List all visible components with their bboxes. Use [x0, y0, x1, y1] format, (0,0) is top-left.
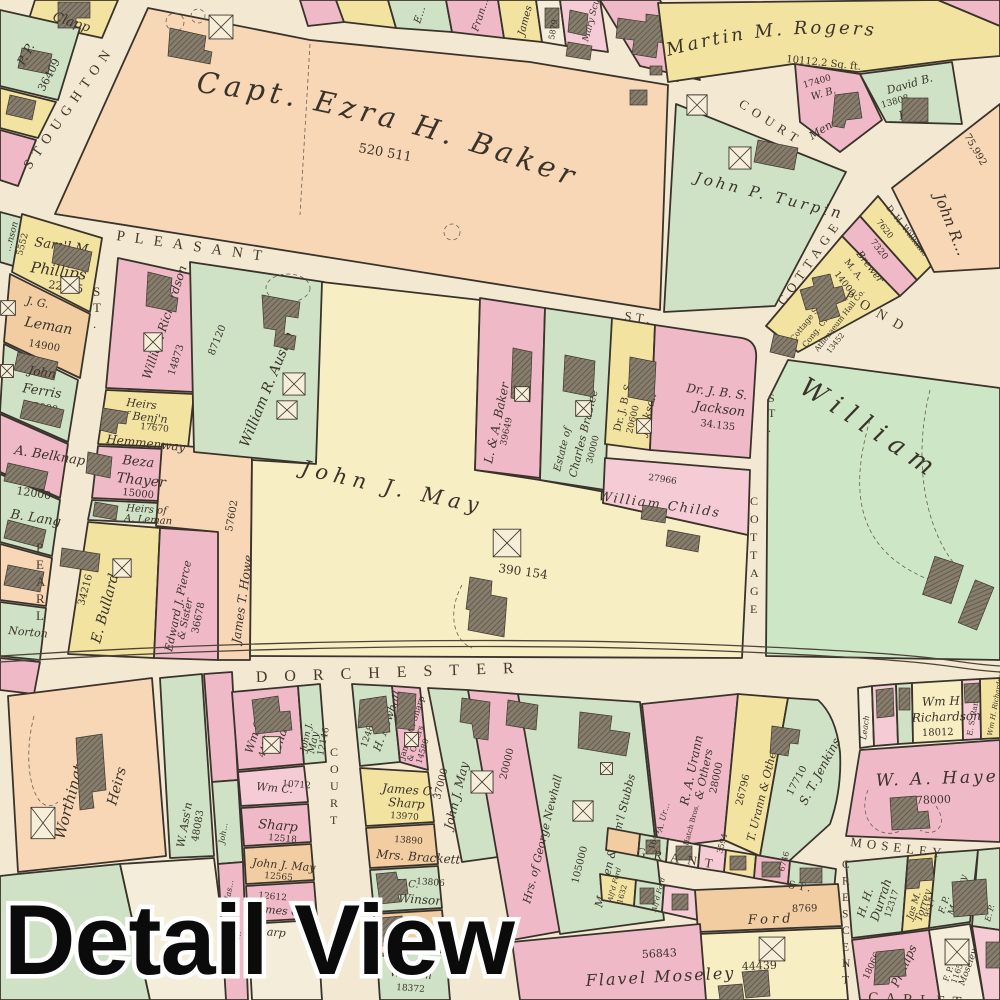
building	[730, 856, 746, 870]
building-x	[61, 277, 79, 294]
label-jcs2b: Sharp	[388, 795, 426, 812]
building	[630, 90, 647, 105]
building-x	[576, 401, 592, 417]
building-x	[515, 387, 530, 402]
parcel-strip	[212, 780, 243, 864]
building-x	[1, 301, 16, 316]
parcel-tiny	[606, 828, 640, 856]
label-brackett-number: 13890	[394, 835, 424, 847]
label-flavel-number: 56843	[641, 946, 677, 961]
building	[876, 688, 894, 718]
label-ford-number: 8769	[792, 903, 818, 915]
building-x	[405, 733, 419, 747]
block-richardson: Leach Wm H. Richardson 18012 E. S. Rand …	[846, 669, 1000, 842]
detail-view-caption: Detail View	[4, 884, 516, 995]
building	[628, 357, 656, 402]
atlas-map-detail-view: Clapp P. P. 36409 …nson 5552 Sam'l M. Ph…	[0, 0, 1000, 1000]
building	[952, 879, 988, 917]
label-ford: Ford	[747, 911, 795, 928]
building-x	[637, 419, 652, 434]
building-x	[687, 95, 707, 115]
block-se-corner: H. H. Durrah 12317 Jas M. Torrey 9517 F.…	[846, 848, 1000, 1000]
parcel-small	[0, 658, 40, 694]
building-x	[945, 939, 969, 965]
block-austin: 87120 William R. Austin	[190, 262, 324, 464]
building	[86, 452, 112, 478]
building	[506, 700, 538, 730]
building-x	[573, 801, 593, 821]
building-x	[144, 333, 162, 351]
building-x	[113, 559, 131, 577]
building-x	[729, 147, 751, 169]
block-may: L. & A. Baker 39649 Estate of Charles Br…	[250, 282, 756, 658]
label-wmh-number: 18012	[922, 727, 954, 739]
label-wmh-1: Wm H.	[922, 694, 964, 709]
block-urann: R. A. Urann & Others 28000 T. Urann & Ot…	[642, 694, 843, 862]
building-x	[1, 365, 14, 378]
building	[672, 894, 688, 910]
building	[899, 688, 910, 710]
label-jcs2-number: 13970	[390, 811, 420, 823]
building	[902, 98, 928, 122]
building	[396, 692, 416, 730]
building	[650, 66, 662, 75]
map-canvas: Clapp P. P. 36409 …nson 5552 Sam'l M. Ph…	[0, 0, 1000, 1000]
building	[964, 683, 980, 703]
building	[986, 942, 1000, 968]
building-x	[283, 373, 305, 395]
building-x	[759, 937, 785, 961]
building-x	[601, 763, 613, 775]
label-hayes: W. A. Hayes	[875, 766, 1000, 791]
building	[718, 984, 744, 1000]
building	[742, 970, 770, 998]
building-x	[209, 15, 233, 39]
building-x	[493, 529, 521, 557]
building-x	[31, 807, 55, 838]
label-hayes-number: 78000	[916, 793, 951, 807]
building-x	[277, 401, 297, 419]
building	[568, 10, 588, 36]
building-x	[263, 737, 280, 754]
building	[563, 355, 595, 397]
building-x	[471, 771, 493, 793]
